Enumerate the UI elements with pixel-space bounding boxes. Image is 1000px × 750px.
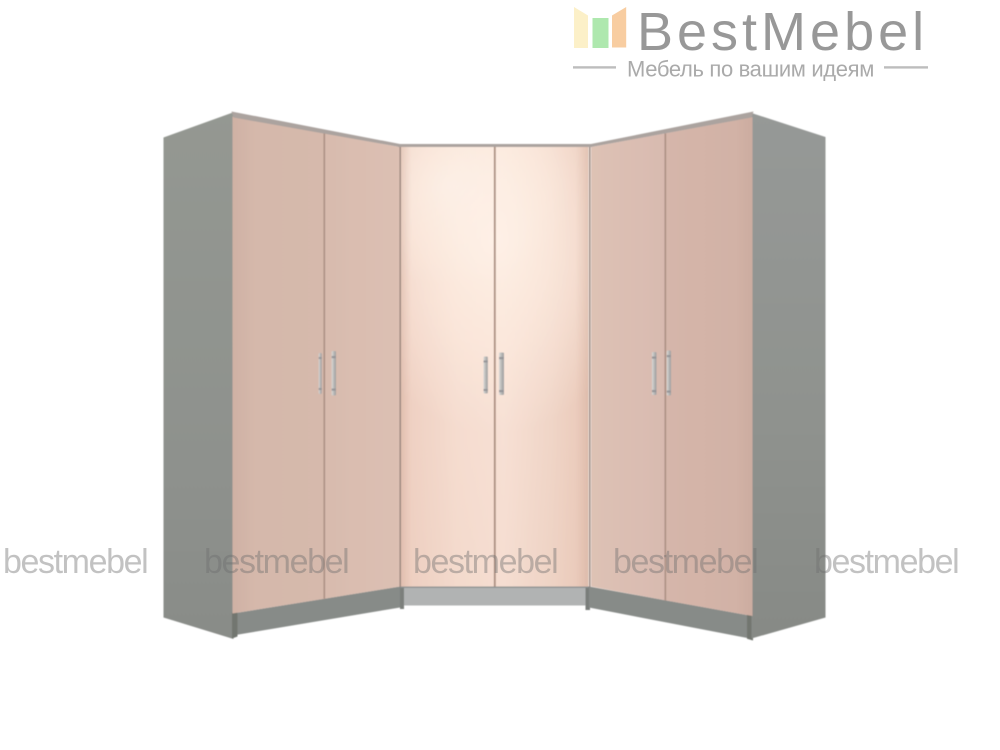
svg-text:BestMebel: BestMebel [637,2,928,62]
svg-text:bestmebel: bestmebel [204,543,348,581]
svg-text:bestmebel: bestmebel [413,543,557,581]
svg-text:bestmebel: bestmebel [814,543,958,581]
svg-text:bestmebel: bestmebel [613,543,757,581]
svg-text:Мебель по вашим идеям: Мебель по вашим идеям [627,57,874,82]
svg-text:bestmebel: bestmebel [3,543,147,581]
